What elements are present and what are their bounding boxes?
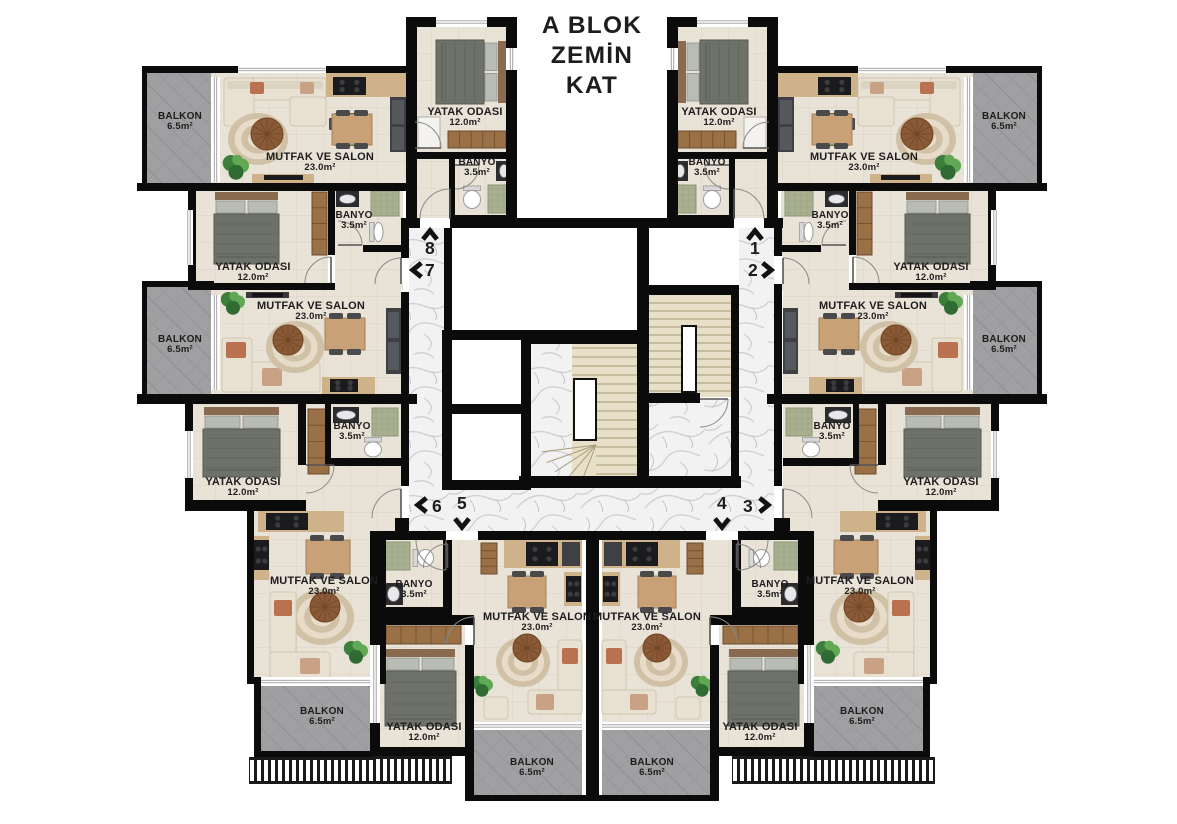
svg-text:ZEMİN: ZEMİN [551,42,633,69]
svg-text:6.5m²: 6.5m² [639,767,665,778]
svg-text:3.5m²: 3.5m² [819,431,845,442]
svg-text:3.5m²: 3.5m² [339,431,365,442]
svg-text:23.0m²: 23.0m² [308,586,339,597]
svg-text:5: 5 [457,493,467,513]
svg-text:12.0m²: 12.0m² [227,487,258,498]
svg-text:1: 1 [750,238,760,258]
svg-text:KAT: KAT [566,72,618,99]
svg-text:6.5m²: 6.5m² [849,716,875,727]
svg-text:3.5m²: 3.5m² [464,167,490,178]
svg-text:4: 4 [717,493,727,513]
svg-text:12.0m²: 12.0m² [237,272,268,283]
svg-text:12.0m²: 12.0m² [744,732,775,743]
svg-text:23.0m²: 23.0m² [295,311,326,322]
svg-text:6: 6 [432,496,442,516]
svg-text:3.5m²: 3.5m² [341,220,367,231]
svg-text:3.5m²: 3.5m² [817,220,843,231]
svg-text:3.5m²: 3.5m² [694,167,720,178]
svg-text:6.5m²: 6.5m² [519,767,545,778]
svg-text:12.0m²: 12.0m² [925,487,956,498]
svg-text:12.0m²: 12.0m² [408,732,439,743]
svg-text:3.5m²: 3.5m² [401,589,427,600]
svg-text:23.0m²: 23.0m² [848,162,879,173]
svg-text:6.5m²: 6.5m² [991,121,1017,132]
svg-text:6.5m²: 6.5m² [167,121,193,132]
svg-text:6.5m²: 6.5m² [309,716,335,727]
svg-text:2: 2 [748,260,758,280]
svg-text:23.0m²: 23.0m² [304,162,335,173]
svg-text:12.0m²: 12.0m² [703,117,734,128]
svg-text:23.0m²: 23.0m² [521,622,552,633]
svg-text:7: 7 [425,260,435,280]
svg-text:12.0m²: 12.0m² [449,117,480,128]
svg-text:23.0m²: 23.0m² [631,622,662,633]
svg-text:3: 3 [743,496,753,516]
svg-text:6.5m²: 6.5m² [991,344,1017,355]
svg-text:A BLOK: A BLOK [542,12,642,39]
svg-text:23.0m²: 23.0m² [857,311,888,322]
svg-text:3.5m²: 3.5m² [757,589,783,600]
svg-text:6.5m²: 6.5m² [167,344,193,355]
svg-text:8: 8 [425,238,435,258]
svg-text:23.0m²: 23.0m² [844,586,875,597]
svg-text:12.0m²: 12.0m² [915,272,946,283]
